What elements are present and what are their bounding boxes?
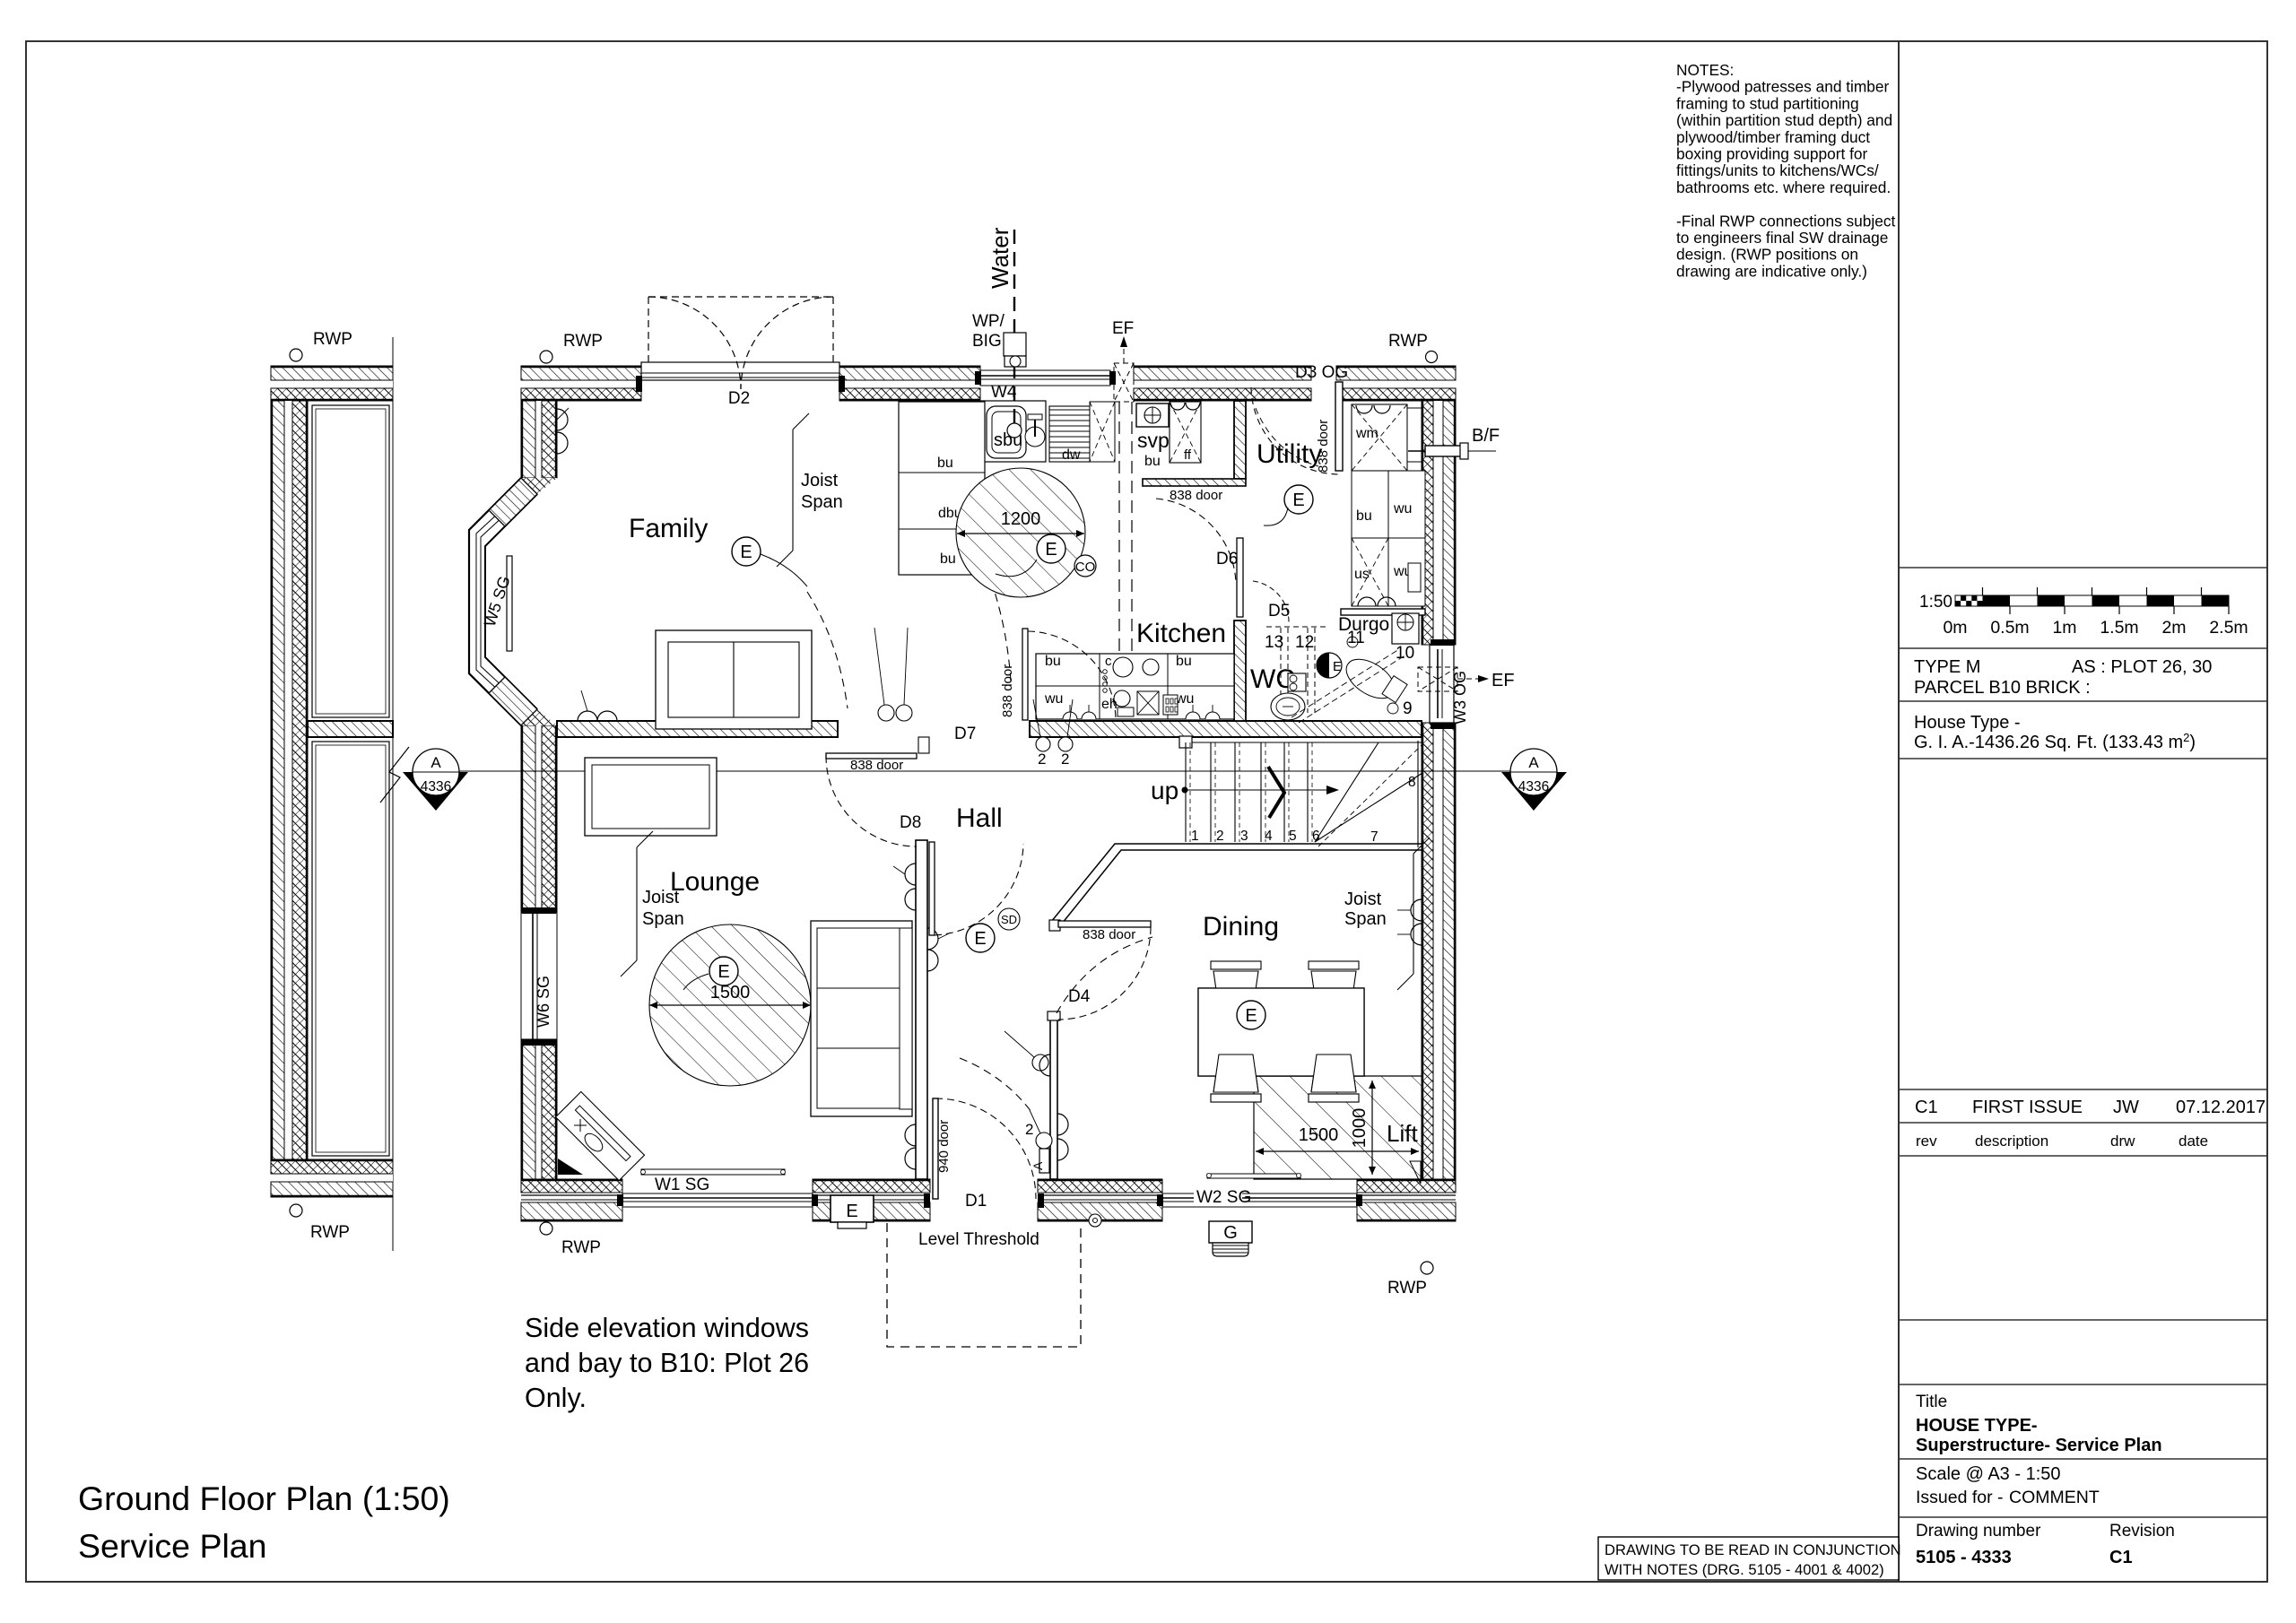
svg-text:JW: JW bbox=[2113, 1098, 2139, 1117]
svg-text:G. I. A.-1436.26 Sq. Ft. (133.: G. I. A.-1436.26 Sq. Ft. (133.43 m2) bbox=[1914, 731, 2196, 752]
svg-text:Span: Span bbox=[1344, 909, 1387, 929]
svg-text:W2 SG: W2 SG bbox=[1196, 1188, 1251, 1207]
svg-text:8: 8 bbox=[1408, 775, 1416, 790]
svg-text:bu: bu bbox=[1144, 454, 1161, 469]
svg-text:D5: D5 bbox=[1268, 602, 1290, 621]
svg-text:1200: 1200 bbox=[1001, 509, 1041, 529]
svg-text:838 door: 838 door bbox=[850, 758, 903, 773]
svg-text:D3 OG: D3 OG bbox=[1295, 363, 1348, 382]
svg-text:12: 12 bbox=[1295, 633, 1314, 652]
svg-text:fittings/units to kitchens/WCs: fittings/units to kitchens/WCs/ bbox=[1676, 161, 1879, 179]
svg-text:dw: dw bbox=[1062, 447, 1081, 463]
svg-text:E: E bbox=[846, 1202, 857, 1221]
svg-text:D6: D6 bbox=[1216, 550, 1238, 568]
svg-text:9: 9 bbox=[1403, 699, 1413, 718]
svg-text:2: 2 bbox=[1025, 1121, 1033, 1138]
svg-text:C1: C1 bbox=[1915, 1098, 1938, 1117]
svg-text:plywood/timber framing duct: plywood/timber framing duct bbox=[1676, 128, 1870, 146]
svg-text:Superstructure- Service Plan: Superstructure- Service Plan bbox=[1916, 1436, 2162, 1455]
svg-text:0.5m: 0.5m bbox=[1990, 618, 2029, 638]
svg-text:RWP: RWP bbox=[561, 1238, 601, 1257]
svg-text:Service Plan: Service Plan bbox=[78, 1527, 267, 1565]
svg-text:eh: eh bbox=[1101, 697, 1118, 712]
svg-text:HOUSE TYPE-: HOUSE TYPE- bbox=[1916, 1416, 2038, 1436]
svg-text:2: 2 bbox=[1038, 751, 1046, 768]
svg-text:us: us bbox=[1354, 567, 1370, 582]
svg-text:Revision: Revision bbox=[2109, 1522, 2175, 1541]
svg-text:D2: D2 bbox=[728, 389, 750, 408]
svg-text:wu: wu bbox=[1044, 691, 1063, 707]
svg-text:RWP: RWP bbox=[1387, 1279, 1427, 1298]
svg-text:E: E bbox=[974, 929, 986, 949]
svg-text:Lift: Lift bbox=[1387, 1120, 1418, 1147]
svg-text:E: E bbox=[717, 962, 729, 982]
svg-text:E: E bbox=[1292, 490, 1304, 510]
svg-text:4336: 4336 bbox=[1518, 779, 1549, 794]
svg-text:drawing are indicative only.): drawing are indicative only.) bbox=[1676, 262, 1867, 280]
svg-text:bathrooms etc. where required.: bathrooms etc. where required. bbox=[1676, 178, 1891, 196]
svg-text:1.5m: 1.5m bbox=[2100, 618, 2138, 638]
svg-text:Ground Floor Plan (1:50): Ground Floor Plan (1:50) bbox=[78, 1480, 450, 1517]
svg-text:bu: bu bbox=[940, 551, 956, 567]
svg-text:W4: W4 bbox=[991, 383, 1017, 402]
svg-text:C1: C1 bbox=[2109, 1548, 2133, 1567]
svg-text:E: E bbox=[1245, 1006, 1257, 1026]
svg-text:E: E bbox=[740, 542, 752, 562]
svg-text:A: A bbox=[1031, 1161, 1045, 1170]
svg-text:House Type -: House Type - bbox=[1914, 713, 2021, 733]
svg-text:Span: Span bbox=[801, 492, 843, 512]
svg-text:1: 1 bbox=[1191, 829, 1199, 844]
svg-text:Dining: Dining bbox=[1203, 912, 1279, 942]
svg-text:Hall: Hall bbox=[956, 803, 1003, 833]
svg-text:FIRST ISSUE: FIRST ISSUE bbox=[1972, 1098, 2083, 1117]
svg-text:D4: D4 bbox=[1068, 987, 1091, 1006]
svg-text:10: 10 bbox=[1396, 644, 1414, 663]
svg-text:rev: rev bbox=[1916, 1133, 1937, 1150]
svg-text:838 door: 838 door bbox=[1000, 664, 1015, 717]
svg-text:CO: CO bbox=[1075, 560, 1096, 575]
svg-text:BIG: BIG bbox=[972, 332, 1002, 351]
svg-text:bu: bu bbox=[937, 456, 953, 471]
svg-text:Joist: Joist bbox=[1344, 890, 1382, 909]
svg-text:Lounge: Lounge bbox=[670, 867, 760, 897]
svg-text:bu: bu bbox=[1356, 508, 1372, 524]
svg-text:EF: EF bbox=[1492, 671, 1515, 690]
svg-text:1000: 1000 bbox=[1350, 1108, 1370, 1149]
svg-text:date: date bbox=[2179, 1133, 2208, 1150]
svg-text:1:50: 1:50 bbox=[1919, 593, 1952, 612]
svg-text:bu: bu bbox=[1045, 654, 1061, 669]
svg-text:Only.: Only. bbox=[525, 1383, 587, 1413]
svg-text:description: description bbox=[1975, 1133, 2048, 1150]
svg-text:6: 6 bbox=[1312, 829, 1320, 844]
svg-text:up: up bbox=[1151, 777, 1178, 804]
svg-text:wu: wu bbox=[1393, 501, 1412, 516]
svg-text:5: 5 bbox=[1289, 829, 1297, 844]
svg-text:-Final RWP connections subject: -Final RWP connections subject bbox=[1676, 212, 1895, 230]
svg-text:wm: wm bbox=[1355, 426, 1378, 441]
svg-text:Drawing number: Drawing number bbox=[1916, 1522, 2041, 1541]
svg-text:1500: 1500 bbox=[710, 983, 751, 1002]
svg-text:RWP: RWP bbox=[1388, 332, 1428, 351]
svg-text:7: 7 bbox=[1370, 829, 1378, 845]
svg-text:1m: 1m bbox=[2052, 618, 2076, 638]
svg-text:framing to stud partitioning: framing to stud partitioning bbox=[1676, 94, 1859, 112]
svg-text:Kitchen: Kitchen bbox=[1136, 619, 1226, 648]
svg-text:WITH NOTES (DRG. 5105 - 4001 &: WITH NOTES (DRG. 5105 - 4001 & 4002) bbox=[1605, 1561, 1884, 1578]
svg-text:Water: Water bbox=[987, 227, 1013, 289]
svg-text:13: 13 bbox=[1265, 633, 1283, 652]
svg-text:Scale @ A3 - 1:50: Scale @ A3 - 1:50 bbox=[1916, 1464, 2061, 1484]
svg-text:Utility: Utility bbox=[1257, 439, 1322, 469]
svg-text:boxing providing support for: boxing providing support for bbox=[1676, 145, 1868, 163]
svg-text:A: A bbox=[430, 754, 441, 771]
svg-text:RWP: RWP bbox=[563, 332, 603, 351]
svg-text:Span: Span bbox=[642, 909, 684, 929]
svg-text:DRAWING TO BE READ IN CONJUNCT: DRAWING TO BE READ IN CONJUNCTION bbox=[1605, 1541, 1901, 1558]
svg-text:ff: ff bbox=[1184, 447, 1192, 463]
svg-text:and bay to B10: Plot 26: and bay to B10: Plot 26 bbox=[525, 1348, 809, 1378]
svg-text:4336: 4336 bbox=[421, 779, 451, 794]
svg-text:drw: drw bbox=[2110, 1133, 2135, 1150]
svg-text:W6 SG: W6 SG bbox=[535, 976, 552, 1028]
svg-text:RWP: RWP bbox=[310, 1223, 350, 1242]
svg-text:-Plywood patresses and timber: -Plywood patresses and timber bbox=[1676, 78, 1889, 96]
svg-text:E: E bbox=[1333, 659, 1342, 674]
svg-text:c: c bbox=[1105, 654, 1112, 669]
svg-text:RWP: RWP bbox=[313, 330, 352, 349]
svg-text:2: 2 bbox=[1216, 829, 1224, 844]
svg-text:2.5m: 2.5m bbox=[2209, 618, 2248, 638]
svg-text:design. (RWP positions on: design. (RWP positions on bbox=[1676, 246, 1858, 264]
svg-text:svp: svp bbox=[1137, 429, 1170, 452]
svg-text:D1: D1 bbox=[965, 1192, 987, 1211]
svg-text:W1 SG: W1 SG bbox=[655, 1176, 709, 1194]
svg-text:PARCEL B10 BRICK :: PARCEL B10 BRICK : bbox=[1914, 678, 2091, 698]
svg-text:Joist: Joist bbox=[801, 471, 839, 490]
svg-text:AS : PLOT 26, 30: AS : PLOT 26, 30 bbox=[2072, 657, 2212, 677]
svg-text:1500: 1500 bbox=[1299, 1125, 1339, 1145]
svg-text:SD: SD bbox=[1001, 913, 1017, 926]
svg-text:D7: D7 bbox=[954, 725, 976, 743]
svg-text:07.12.2017: 07.12.2017 bbox=[2176, 1098, 2266, 1117]
svg-text:Family: Family bbox=[629, 514, 708, 543]
svg-text:A: A bbox=[1528, 754, 1539, 771]
svg-text:0m: 0m bbox=[1943, 618, 1967, 638]
svg-text:3: 3 bbox=[1240, 829, 1248, 844]
svg-text:940 door: 940 door bbox=[936, 1120, 952, 1173]
svg-text:NOTES:: NOTES: bbox=[1676, 61, 1734, 79]
svg-text:G: G bbox=[1223, 1223, 1238, 1243]
svg-text:to engineers final SW drainage: to engineers final SW drainage bbox=[1676, 229, 1888, 247]
svg-text:2: 2 bbox=[1061, 751, 1069, 768]
svg-text:bu: bu bbox=[1176, 654, 1192, 669]
svg-text:B/F: B/F bbox=[1472, 426, 1500, 446]
svg-text:WP/: WP/ bbox=[972, 312, 1005, 331]
svg-text:Title: Title bbox=[1916, 1393, 1947, 1411]
svg-text:2m: 2m bbox=[2161, 618, 2186, 638]
svg-text:5105 - 4333: 5105 - 4333 bbox=[1916, 1548, 2012, 1567]
svg-text:Issued for -: Issued for - bbox=[1916, 1488, 2004, 1507]
svg-text:Level Threshold: Level Threshold bbox=[918, 1230, 1039, 1249]
svg-text:E: E bbox=[1045, 540, 1057, 560]
svg-text:TYPE M: TYPE M bbox=[1914, 657, 1980, 677]
svg-text:Side elevation windows: Side elevation windows bbox=[525, 1313, 809, 1343]
svg-text:COMMENT: COMMENT bbox=[2009, 1488, 2100, 1507]
svg-text:Joist: Joist bbox=[642, 888, 680, 907]
svg-text:838 door: 838 door bbox=[1170, 488, 1222, 503]
svg-text:4: 4 bbox=[1265, 829, 1273, 844]
svg-text:EF: EF bbox=[1112, 319, 1134, 338]
svg-text:(within partition stud depth): (within partition stud depth) and bbox=[1676, 111, 1892, 129]
svg-text:838 door: 838 door bbox=[1083, 927, 1135, 942]
svg-text:D8: D8 bbox=[900, 813, 921, 832]
